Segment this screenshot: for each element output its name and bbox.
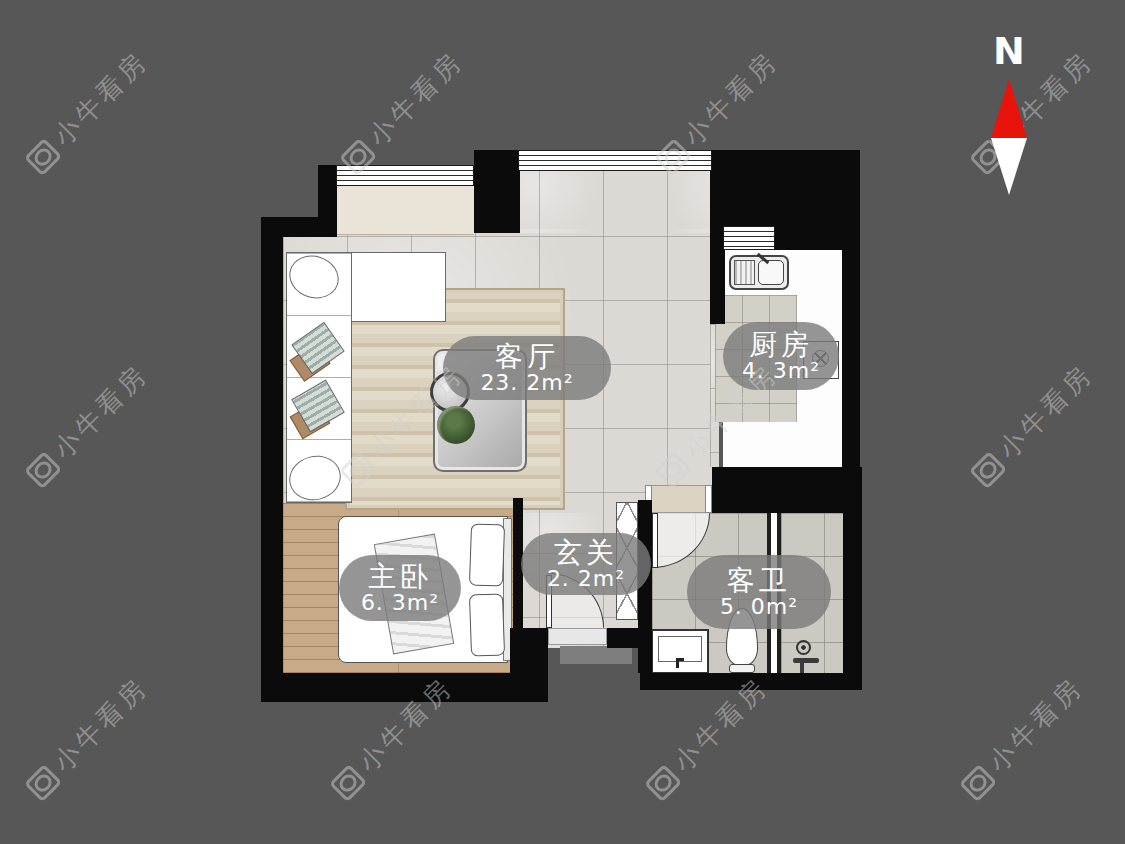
kitchen-area: 4. 3m² [742, 359, 820, 382]
room-label-master-bedroom: 主卧 6. 3m² [339, 555, 461, 621]
bathroom-door-leaf [652, 513, 658, 568]
entry-name: 玄关 [554, 538, 618, 567]
bathroom-threshold [645, 485, 712, 513]
wall-pillar [474, 150, 520, 233]
kitchen-window [723, 226, 775, 250]
room-label-entry: 玄关 2. 2m² [521, 533, 651, 595]
watermark: 小牛看房 [20, 357, 155, 492]
balcony-window [336, 165, 474, 186]
wall-balcony-left [318, 165, 337, 237]
watermark-text: 小牛看房 [991, 357, 1101, 467]
kitchen-name: 厨房 [749, 330, 813, 359]
floorplan-page: { "compass": { "north_label": "N" }, "wa… [0, 0, 1125, 844]
vanity-faucet-icon [676, 658, 684, 668]
master-bedroom-name: 主卧 [368, 562, 432, 591]
kitchen-sink-basin [758, 260, 784, 285]
watermark-logo-icon [959, 764, 997, 802]
wall-entry-right-block [607, 628, 652, 648]
room-label-kitchen: 厨房 4. 3m² [723, 322, 839, 390]
watermark-text: 小牛看房 [46, 357, 156, 467]
entry-threshold [548, 628, 607, 645]
shower-head-icon [796, 640, 811, 655]
watermark-text: 小牛看房 [676, 44, 786, 154]
wall-bathroom-right [843, 487, 862, 690]
room-label-living-room: 客厅 23. 2m² [443, 336, 611, 400]
wall-entry-left-block [510, 628, 548, 673]
watermark: 小牛看房 [640, 670, 775, 805]
wall-kitchen-right [842, 250, 860, 487]
living-room-area: 23. 2m² [480, 371, 573, 394]
toilet-base [729, 664, 755, 673]
watermark: 小牛看房 [335, 44, 470, 179]
watermark: 小牛看房 [955, 670, 1090, 805]
main-window [518, 150, 712, 171]
watermark-logo-icon [24, 764, 62, 802]
bathroom-area: 5. 0m² [720, 595, 798, 618]
wall-left [261, 217, 283, 702]
balcony-sill [336, 186, 474, 235]
watermark-logo-icon [24, 138, 62, 176]
shower-handle-icon [793, 658, 819, 663]
wall-bathroom-bottom [640, 673, 862, 690]
watermark: 小牛看房 [20, 670, 155, 805]
compass-needle-icon [990, 78, 1028, 196]
watermark-text: 小牛看房 [46, 44, 156, 154]
bed-pillow-1 [469, 523, 505, 586]
bed-pillow-2 [469, 593, 505, 656]
living-room-floor-top [518, 171, 712, 233]
bathroom-name: 客卫 [727, 566, 791, 595]
shower-pipe-icon [800, 663, 804, 673]
watermark-text: 小牛看房 [46, 670, 156, 780]
entry-step [560, 646, 632, 664]
wall-bedroom-bottom [261, 673, 548, 702]
entry-area: 2. 2m² [547, 567, 625, 590]
wall-kitchen-bathroom-block [712, 467, 862, 513]
watermark-logo-icon [24, 451, 62, 489]
watermark-logo-icon [969, 451, 1007, 489]
watermark-text: 小牛看房 [361, 44, 471, 154]
watermark: 小牛看房 [965, 357, 1100, 492]
watermark: 小牛看房 [20, 44, 155, 179]
wall-kitchen-left [710, 250, 725, 324]
kitchen-sink-drainboard [734, 260, 755, 285]
watermark-logo-icon [644, 764, 682, 802]
room-label-bathroom: 客卫 5. 0m² [687, 555, 831, 629]
master-bedroom-area: 6. 3m² [361, 591, 439, 614]
watermark-logo-icon [329, 764, 367, 802]
compass-north-label: N [985, 32, 1033, 70]
watermark-text: 小牛看房 [981, 670, 1091, 780]
bathroom-door-frame-right [705, 485, 712, 513]
table-plant [437, 406, 475, 444]
compass: N [985, 32, 1033, 202]
living-room-name: 客厅 [495, 342, 559, 371]
